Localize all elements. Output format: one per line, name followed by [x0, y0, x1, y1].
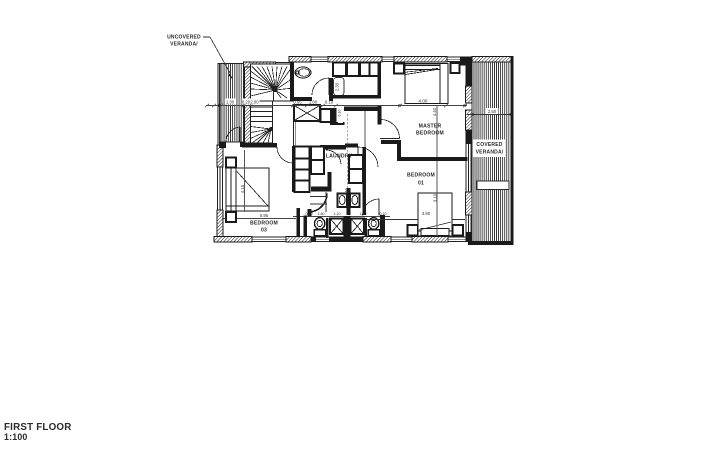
svg-text:COVERED: COVERED [476, 142, 502, 148]
svg-text:3.10: 3.10 [433, 193, 438, 202]
svg-text:1.10: 1.10 [334, 212, 341, 216]
svg-text:2.50: 2.50 [488, 109, 497, 114]
svg-text:0.19: 0.19 [325, 100, 334, 105]
svg-text:LAUNDRY: LAUNDRY [326, 154, 353, 160]
svg-text:4.15: 4.15 [240, 184, 245, 193]
svg-text:1:100: 1:100 [4, 432, 28, 442]
svg-text:0.65: 0.65 [293, 100, 302, 105]
svg-text:4.40: 4.40 [432, 107, 437, 116]
svg-text:01: 01 [418, 181, 424, 187]
svg-text:1.30: 1.30 [226, 100, 235, 105]
svg-text:BEDROOM: BEDROOM [407, 173, 435, 179]
svg-text:2.30: 2.30 [335, 82, 340, 91]
svg-text:UNCOVERED: UNCOVERED [167, 35, 201, 41]
svg-text:VERANDA/: VERANDA/ [476, 150, 504, 156]
svg-text:0.10: 0.10 [306, 212, 313, 216]
svg-text:03: 03 [261, 228, 267, 234]
svg-text:MASTER: MASTER [419, 124, 442, 130]
svg-text:VERANDA/: VERANDA/ [170, 42, 198, 48]
svg-text:BEDROOM: BEDROOM [250, 221, 278, 227]
svg-text:0.10: 0.10 [345, 189, 349, 196]
svg-text:BEDROOM: BEDROOM [416, 131, 444, 137]
svg-text:5.95: 5.95 [260, 213, 269, 218]
svg-text:6.10: 6.10 [338, 110, 342, 117]
svg-text:2.00: 2.00 [250, 100, 259, 105]
svg-text:0.20: 0.20 [242, 100, 251, 105]
svg-text:4.00: 4.00 [419, 99, 428, 104]
svg-text:3.80: 3.80 [422, 211, 431, 216]
svg-text:1.60: 1.60 [318, 212, 325, 216]
svg-text:1.60: 1.60 [309, 100, 318, 105]
